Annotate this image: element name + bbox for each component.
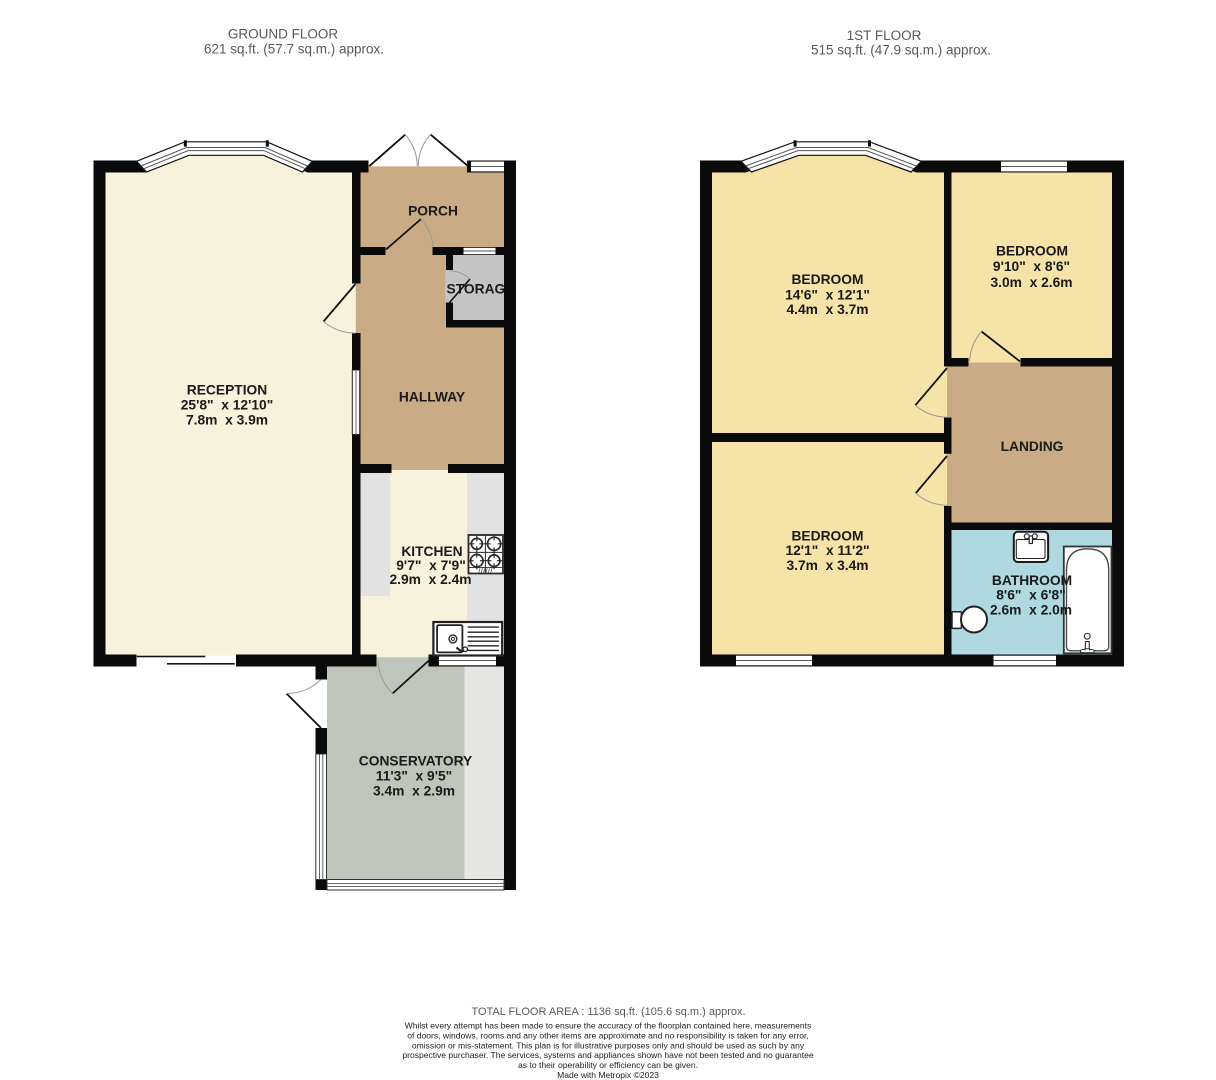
svg-text:prospective purchaser. The ser: prospective purchaser. The services, sys… [402, 1050, 814, 1060]
svg-text:RECEPTION: RECEPTION [187, 383, 268, 398]
svg-text:BEDROOM: BEDROOM [996, 244, 1068, 259]
svg-text:BEDROOM: BEDROOM [791, 528, 863, 543]
svg-text:GROUND FLOOR: GROUND FLOOR [228, 27, 339, 42]
svg-text:2.6m x 2.0m: 2.6m x 2.0m [990, 602, 1072, 617]
svg-text:4.4m x 3.7m: 4.4m x 3.7m [786, 302, 868, 317]
svg-text:LANDING: LANDING [1001, 439, 1064, 454]
svg-text:1ST FLOOR: 1ST FLOOR [847, 28, 922, 43]
svg-text:Whilst every attempt has been: Whilst every attempt has been made to en… [405, 1021, 812, 1031]
svg-text:as to their operability or eff: as to their operability or efficiency ca… [518, 1060, 698, 1070]
svg-text:8'6" x 6'8": 8'6" x 6'8" [996, 588, 1066, 603]
svg-text:Made with Metropix ©2023: Made with Metropix ©2023 [557, 1070, 659, 1080]
svg-text:9'7" x 7'9": 9'7" x 7'9" [396, 558, 466, 573]
svg-text:621 sq.ft. (57.7 sq.m.) approx: 621 sq.ft. (57.7 sq.m.) approx. [204, 42, 384, 57]
svg-text:KITCHEN: KITCHEN [401, 544, 462, 559]
svg-text:CONSERVATORY: CONSERVATORY [359, 754, 472, 769]
svg-text:BEDROOM: BEDROOM [791, 272, 863, 287]
svg-text:12'1" x 11'2": 12'1" x 11'2" [785, 543, 869, 558]
svg-text:7.8m x 3.9m: 7.8m x 3.9m [186, 413, 268, 428]
svg-text:PORCH: PORCH [408, 204, 458, 219]
svg-text:omission or mis-statement. Thi: omission or mis-statement. This plan is … [412, 1040, 805, 1050]
svg-text:9'10" x 8'6": 9'10" x 8'6" [993, 259, 1070, 274]
svg-text:3.0m x 2.6m: 3.0m x 2.6m [990, 275, 1072, 290]
svg-text:14'6" x 12'1": 14'6" x 12'1" [785, 287, 870, 302]
svg-text:515 sq.ft. (47.9 sq.m.) approx: 515 sq.ft. (47.9 sq.m.) approx. [811, 43, 991, 58]
svg-text:3.4m x 2.9m: 3.4m x 2.9m [373, 784, 455, 799]
svg-text:of doors, windows, rooms and a: of doors, windows, rooms and any other i… [407, 1030, 808, 1040]
svg-text:11'3" x 9'5": 11'3" x 9'5" [376, 769, 452, 784]
svg-text:25'8" x 12'10": 25'8" x 12'10" [181, 398, 274, 413]
svg-text:BATHROOM: BATHROOM [992, 573, 1072, 588]
svg-text:HALLWAY: HALLWAY [399, 390, 465, 405]
svg-text:TOTAL FLOOR AREA : 1136 sq.ft.: TOTAL FLOOR AREA : 1136 sq.ft. (105.6 sq… [471, 1006, 745, 1018]
svg-text:2.9m x 2.4m: 2.9m x 2.4m [389, 572, 471, 587]
svg-text:3.7m x 3.4m: 3.7m x 3.4m [786, 558, 868, 573]
